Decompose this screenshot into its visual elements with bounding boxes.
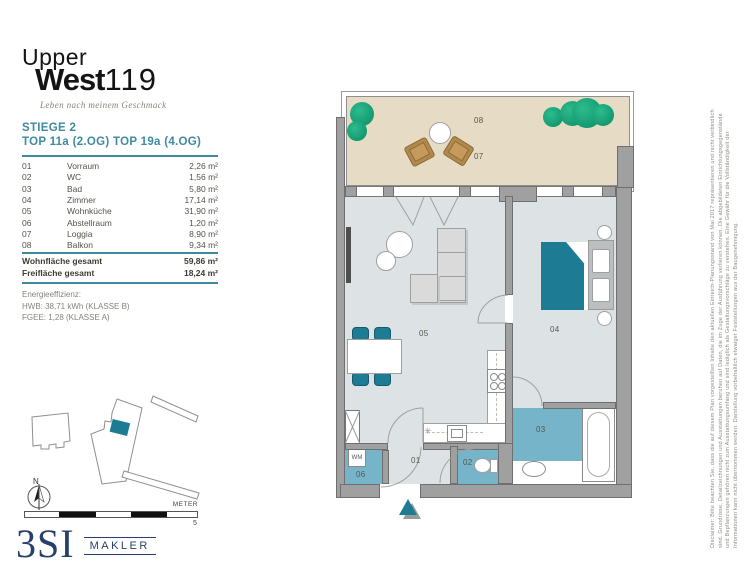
window-pillar [345,186,357,197]
disclaimer-line: Disclaimer: Bitte beachten Sie, dass die… [710,33,718,548]
broker-name: 3SI [16,524,75,564]
bathtub-basin [587,412,610,477]
site-building-topright [151,396,198,422]
disclaimer-line: und Bepflanzungen gehören nicht zum Auss… [725,33,733,548]
table-row: 01Vorraum2,26 m² [22,161,218,172]
room-name: Abstellraum [67,218,112,228]
room-table: 01Vorraum2,26 m² 02WC1,56 m² 03Bad5,80 m… [22,161,218,253]
room-label-balkon: 08 [474,116,484,125]
energy-block: Energieeffizienz: HWB: 38,71 kWh (KLASSE… [22,289,130,324]
bathtub [582,407,615,482]
nightstand [597,225,612,240]
table-row: 03Bad5,80 m² [22,184,218,195]
site-plan [20,385,220,520]
room-label-zimmer: 04 [550,325,560,334]
total-row-outdoor: Freifläche gesamt 18,24 m² [22,268,218,279]
table-rule-bottom [22,282,218,284]
toilet-tank [490,459,498,473]
entrance-arrow-icon [399,499,417,515]
floor-plan-sheet: Upper West119 Leben nach meinem Geschmac… [0,0,745,576]
room-no: 06 [22,218,31,228]
tree-icon [592,104,614,126]
scale-segment [59,512,96,517]
stiege-heading: STIEGE 2 [22,122,76,134]
room-no: 01 [22,161,31,171]
north-arrow [28,484,50,510]
table-row: 04Zimmer17,14 m² [22,195,218,206]
north-label: N [33,477,39,486]
disclaimer: Disclaimer: Bitte beachten Sie, dass die… [710,33,740,548]
total-label: Freifläche gesamt [22,268,94,278]
room-name: Wohnküche [67,206,112,216]
window-pillar [383,186,394,197]
chair-seat [409,142,431,162]
room-name: Loggia [67,229,93,239]
pillow [592,278,610,302]
wall-bottom-left [340,484,380,498]
room-name: Balkon [67,240,93,250]
room-label-abstellraum: 06 [356,470,366,479]
table-row: 05Wohnküche31,90 m² [22,206,218,217]
scale-unit-label: METER [150,501,198,508]
total-label: Wohnfläche gesamt [22,256,102,266]
table-rule-top [22,252,218,254]
sofa [437,228,466,303]
table-row: 07Loggia8,90 m² [22,229,218,240]
room-area: 17,14 m² [184,195,218,205]
window-pillar [562,186,574,197]
dining-table [347,339,402,374]
room-area: 1,20 m² [189,218,218,228]
room-no: 03 [22,184,31,194]
wall-left [336,117,345,498]
brand-number: 119 [105,62,157,97]
floor-bad-wet [513,408,582,461]
room-label-bad: 03 [536,425,546,434]
wall-balcony-column [617,146,634,188]
disclaimer-line: Informationen kann nicht übernommen werd… [733,33,741,548]
room-area: 31,90 m² [184,206,218,216]
total-value: 18,24 m² [184,268,218,278]
shaft [345,410,360,444]
dining-chair [374,372,391,386]
room-no: 05 [22,206,31,216]
washing-machine: WM [348,448,366,467]
room-name: WC [67,172,81,182]
cooktop [487,369,507,393]
site-building-main [91,399,142,484]
room-no: 04 [22,195,31,205]
brand-tagline: Leben nach meinem Geschmack [40,100,167,110]
room-area: 8,90 m² [189,229,218,239]
total-value: 59,86 m² [184,256,218,266]
wall-hall-a [345,443,388,450]
total-row-living: Wohnfläche gesamt 59,86 m² [22,256,218,267]
wall-wc-left [450,446,458,484]
wall-hall-b [423,443,505,450]
window-pillar [602,186,616,197]
coffee-table-small [376,251,396,271]
brand-west-text: West [35,62,105,97]
site-building-bottomright [122,471,199,499]
burner-icon [490,382,498,390]
heading-rule [22,155,218,157]
room-no: 07 [22,229,31,239]
dining-chair [352,372,369,386]
table-row: 08Balkon9,34 m² [22,240,218,251]
scale-max-label: 5 [193,520,197,527]
top-heading: TOP 11a (2.OG) TOP 19a (4.OG) [22,136,201,148]
wall-abstellraum [382,450,389,484]
wall-bottom-right [420,484,632,498]
scale-bar [24,511,198,518]
wall-divider-upper [505,196,513,295]
tree-icon [347,121,367,141]
balcony-table [429,122,451,144]
table-row: 06Abstellraum1,20 m² [22,218,218,229]
broker-suffix: MAKLER [84,537,156,555]
sofa-chaise [410,274,438,303]
room-name: Vorraum [67,161,99,171]
energy-fgee: FGEE: 1,28 (KLASSE A) [22,312,130,324]
pillow [592,249,610,273]
room-area: 2,26 m² [189,161,218,171]
wall-right [616,186,632,498]
energy-title: Energieeffizienz: [22,289,130,301]
toilet-bowl [474,458,491,473]
room-no: 02 [22,172,31,182]
room-name: Zimmer [67,195,96,205]
chair-seat [448,141,470,162]
energy-hwb: HWB: 38,71 kWh (KLASSE B) [22,301,130,313]
wall-bad-top [543,402,616,409]
room-name: Bad [67,184,82,194]
room-label-vorraum: 01 [411,456,421,465]
site-building-left [32,413,70,449]
wall-wc-right [498,443,513,484]
table-row: 02WC1,56 m² [22,172,218,183]
scale-segment [131,512,167,517]
window-glazing-left [346,227,351,283]
room-area: 9,34 m² [189,240,218,250]
brand-word-west: West119 [35,64,157,95]
burner-icon [490,373,498,381]
disclaimer-line: sind. Grundrisse, Detailzeichnungen und … [718,33,726,548]
room-area: 5,80 m² [189,184,218,194]
room-label-wc: 02 [463,458,473,467]
room-no: 08 [22,240,31,250]
room-label-wohnkueche: 05 [419,329,429,338]
window-pillar [459,186,471,197]
oven-door [451,429,463,438]
oven [447,425,467,442]
nightstand [597,311,612,326]
sink-icon: ✳ [424,426,432,437]
room-label-loggia: 07 [474,152,484,161]
bath-sink [522,461,546,477]
broker-logo: 3SI MAKLER [16,524,156,564]
room-area: 1,56 m² [189,172,218,182]
